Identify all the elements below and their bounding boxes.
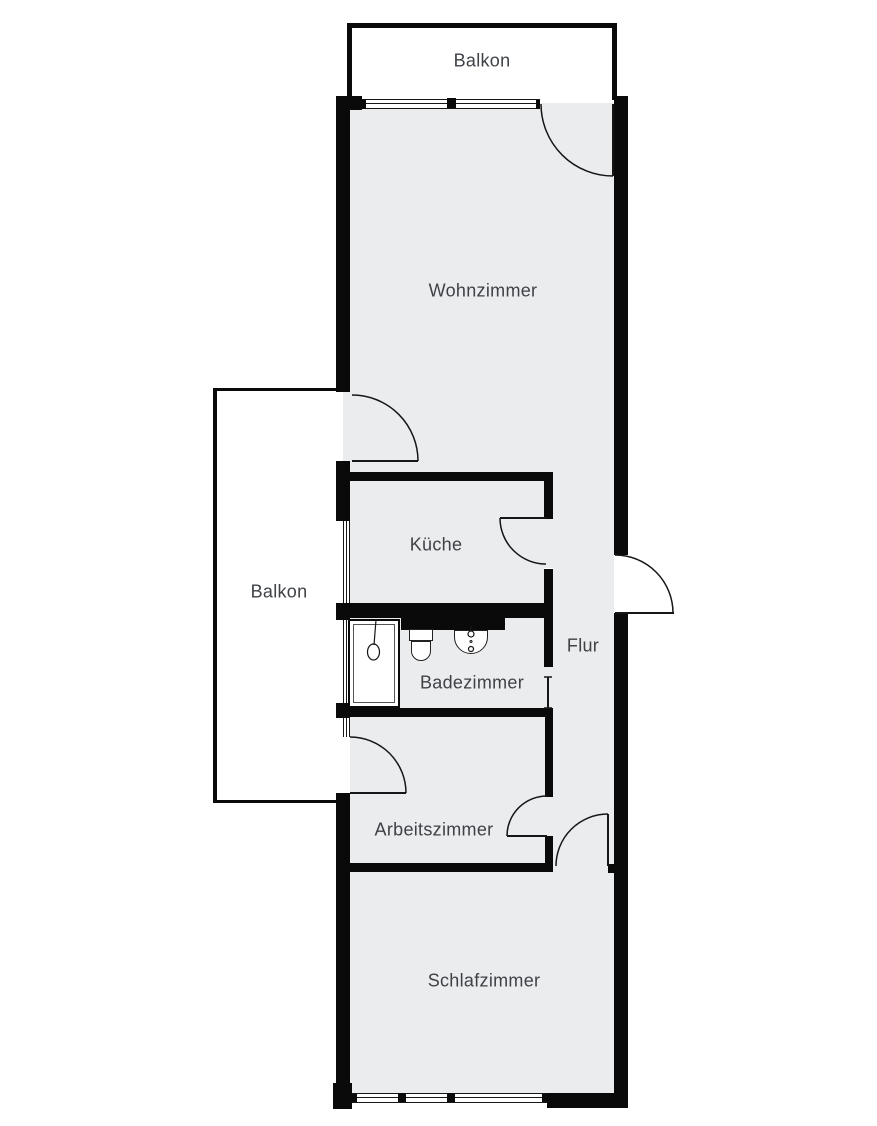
room-label-schlafzimmer: Schlafzimmer [428, 971, 541, 992]
wall-left-6 [333, 1083, 352, 1109]
doorway-badezimmer [543, 667, 554, 708]
doorway-arbeitszimmer [544, 797, 554, 836]
room-label-balkon-left: Balkon [251, 582, 308, 603]
wall-kueche-right-a [544, 481, 553, 519]
room-label-flur: Flur [567, 636, 599, 657]
wall-bad-bottom [350, 708, 553, 717]
room-arbeitszimmer [350, 717, 545, 863]
window-cap [352, 1094, 357, 1102]
wall-bottom-right [547, 1093, 628, 1108]
floorplan-canvas: Balkon Wohnzimmer Balkon Küche Badezimme… [0, 0, 877, 1126]
room-flur [553, 472, 614, 866]
room-label-arbeitszimmer: Arbeitszimmer [375, 820, 494, 841]
window-cap [542, 1094, 547, 1102]
shower-inner-tray [353, 624, 395, 703]
window-cap [362, 100, 366, 109]
window-cap [536, 100, 540, 109]
wall-schlafzimmer-stub [608, 864, 616, 873]
wall-bad-right [544, 618, 553, 667]
wall-left-2 [336, 461, 350, 521]
toilet-icon [409, 629, 433, 641]
doorway-kueche [543, 518, 554, 568]
wall-schlafzimmer-top [336, 863, 553, 872]
toilet-bowl [411, 641, 431, 661]
room-label-kueche: Küche [410, 535, 463, 556]
wall-bad-top [343, 603, 553, 618]
doorway-balkon-wohnzimmer [343, 392, 350, 461]
window-mullion [398, 1093, 406, 1102]
door-entrance-arc [615, 555, 673, 613]
window-mullion [447, 1093, 455, 1102]
wall-left-1 [336, 96, 350, 392]
wall-right-1 [614, 96, 628, 555]
wall-kueche-top [350, 472, 553, 481]
room-label-badezimmer: Badezimmer [420, 673, 524, 694]
window-arbeitszimmer-left [343, 718, 350, 737]
window-kueche-left [343, 521, 350, 603]
window-mullion [447, 98, 456, 108]
wall-kueche-right-b [544, 569, 553, 603]
doorway-schlafzimmer [553, 863, 608, 872]
wall-right-2 [614, 613, 628, 1108]
room-label-wohnzimmer: Wohnzimmer [429, 281, 538, 302]
wall-flur-left-a [545, 717, 553, 797]
wall-left-5 [336, 793, 350, 1083]
room-label-balkon-top: Balkon [454, 51, 511, 72]
